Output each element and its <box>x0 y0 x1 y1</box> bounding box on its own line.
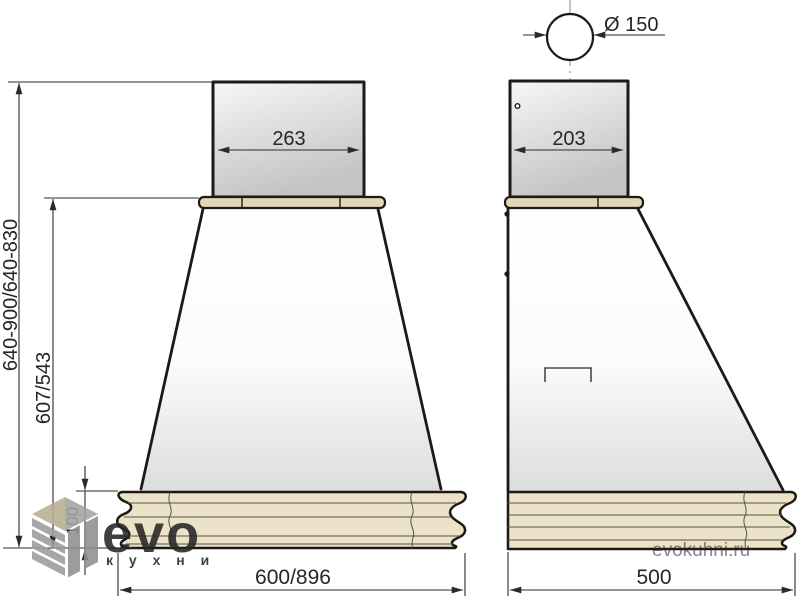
drawing-canvas: 640-900/640-830 607/543 100 263 203 <box>0 0 800 600</box>
side-mounting-strip <box>505 197 643 208</box>
front-view <box>117 82 466 548</box>
front-mounting-strip <box>199 197 385 208</box>
side-view <box>504 0 795 549</box>
wall-mount-pin <box>504 211 509 216</box>
site-watermark: evokuhni.ru <box>652 540 750 561</box>
logo-subtitle-text: к у х н и <box>106 552 215 568</box>
dim-label-side-duct-width: 203 <box>552 128 585 150</box>
logo-cube-icon <box>32 497 98 578</box>
dim-front-base-width: 600/896 <box>120 566 463 590</box>
dim-total-height: 640-900/640-830 <box>0 83 22 547</box>
side-canopy <box>508 209 783 491</box>
dim-label-flue-diameter: Ø 150 <box>604 14 658 36</box>
dim-flue-diameter: Ø 150 <box>523 14 665 36</box>
flue-circle <box>547 14 593 60</box>
wall-mount-pin <box>504 271 509 276</box>
dim-label-side-base-width: 500 <box>636 566 671 589</box>
dim-side-base-width: 500 <box>510 566 793 590</box>
brand-logo: evo к у х н и <box>32 497 215 578</box>
dim-canopy-height: 607/543 <box>33 199 55 547</box>
dim-label-total-height: 640-900/640-830 <box>0 219 22 371</box>
technical-drawing: 640-900/640-830 607/543 100 263 203 <box>0 0 800 600</box>
duct-screw-hole <box>515 104 520 109</box>
dim-label-canopy-height: 607/543 <box>33 352 55 424</box>
front-canopy <box>141 209 441 491</box>
dim-label-front-base-width: 600/896 <box>255 566 331 589</box>
dim-label-front-duct-width: 263 <box>272 128 305 150</box>
